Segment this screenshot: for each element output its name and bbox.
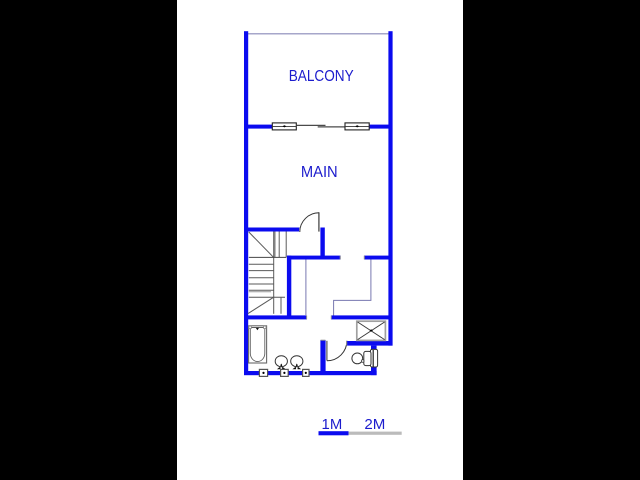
svg-text:2M: 2M	[364, 417, 385, 433]
svg-text:1M: 1M	[322, 417, 343, 433]
svg-text:BALCONY: BALCONY	[289, 68, 354, 85]
svg-text:MAIN: MAIN	[301, 164, 338, 181]
